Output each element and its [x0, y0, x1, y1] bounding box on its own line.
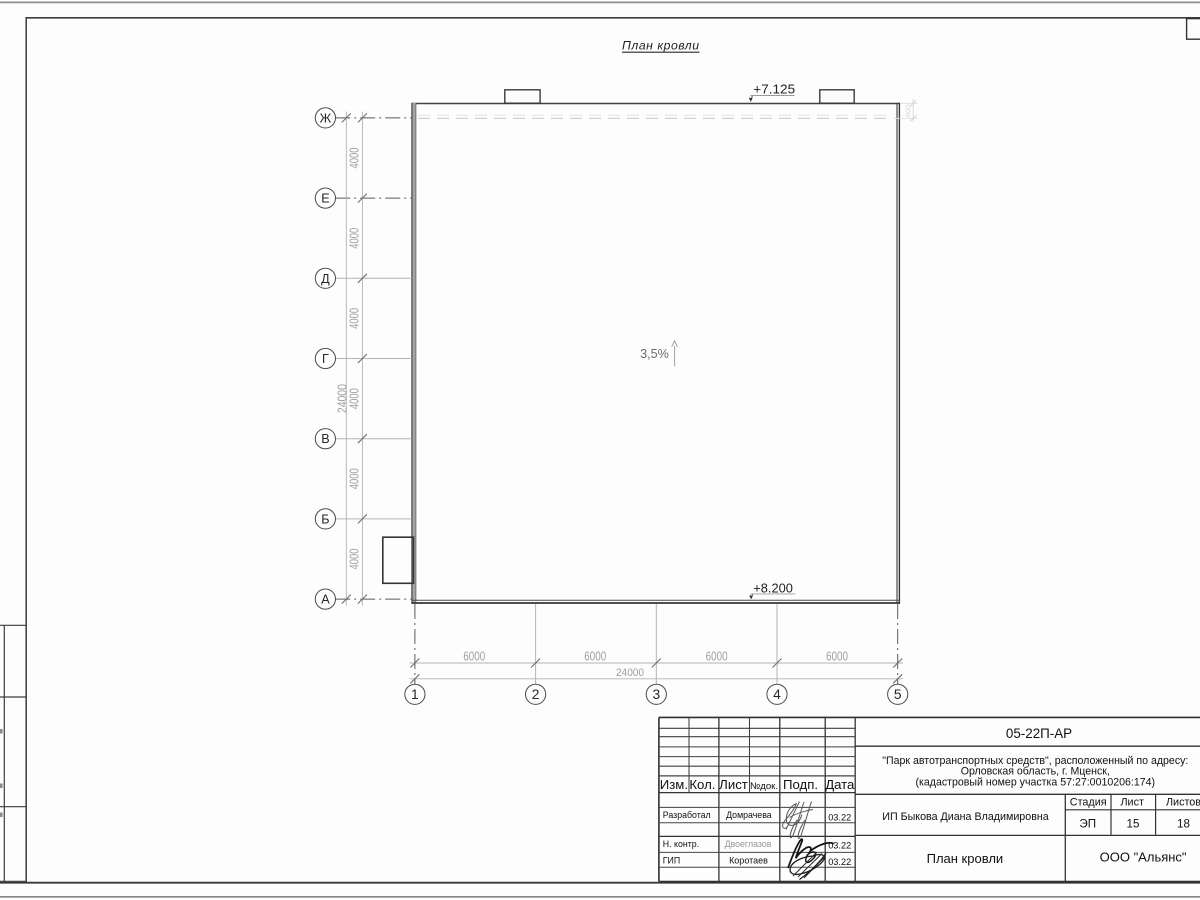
- svg-text:+7.125: +7.125: [753, 81, 795, 96]
- svg-text:Лист: Лист: [1120, 797, 1144, 809]
- svg-text:Двоеглазов: Двоеглазов: [725, 839, 772, 849]
- svg-text:Е: Е: [321, 192, 329, 206]
- svg-text:Изм.: Изм.: [660, 777, 688, 792]
- svg-text:03.22: 03.22: [828, 840, 851, 850]
- svg-text:18: 18: [1177, 817, 1190, 830]
- svg-text:24000: 24000: [335, 384, 350, 413]
- svg-text:3,5%: 3,5%: [640, 347, 669, 361]
- svg-text:Дата: Дата: [825, 777, 855, 792]
- svg-text:4: 4: [773, 687, 781, 702]
- svg-text:В: В: [321, 432, 329, 446]
- svg-text:Подп.: Подп.: [783, 777, 818, 792]
- svg-text:6000: 6000: [826, 648, 848, 663]
- svg-text:Домрачева: Домрачева: [726, 810, 772, 820]
- svg-text:800: 800: [904, 105, 913, 118]
- svg-text:(кадастровый номер участка 57:: (кадастровый номер участка 57:27:0010206…: [916, 777, 1156, 789]
- svg-text:А: А: [321, 593, 330, 607]
- svg-text:4000: 4000: [347, 308, 362, 329]
- svg-text:ЭП: ЭП: [1079, 817, 1096, 830]
- svg-text:05-22П-АР: 05-22П-АР: [1006, 726, 1072, 741]
- svg-text:03.22: 03.22: [828, 813, 851, 823]
- svg-text:03.22: 03.22: [828, 857, 851, 867]
- svg-text:ООО "Альянс": ООО "Альянс": [1100, 850, 1187, 865]
- svg-text:4000: 4000: [347, 228, 362, 249]
- svg-text:1: 1: [411, 687, 419, 702]
- svg-text:Стадия: Стадия: [1070, 797, 1107, 809]
- svg-text:Разработал: Разработал: [663, 810, 711, 820]
- svg-text:Коротаев: Коротаев: [729, 855, 768, 865]
- svg-text:№док.: №док.: [750, 781, 778, 792]
- svg-text:15: 15: [1127, 817, 1140, 830]
- svg-text:ИП Быкова Диана Владимировна: ИП Быкова Диана Владимировна: [882, 811, 1049, 823]
- svg-text:4000: 4000: [347, 468, 362, 489]
- svg-text:Листов: Листов: [1166, 797, 1200, 809]
- svg-text:+8.200: +8.200: [753, 580, 793, 595]
- svg-text:Ж: Ж: [320, 111, 332, 125]
- svg-text:План кровли: План кровли: [622, 38, 700, 52]
- svg-text:6000: 6000: [706, 648, 728, 663]
- svg-text:Лист: Лист: [719, 777, 748, 792]
- svg-text:ГИП: ГИП: [663, 855, 680, 865]
- svg-text:Д: Д: [321, 272, 330, 286]
- svg-text:5: 5: [894, 687, 902, 702]
- svg-text:3: 3: [652, 687, 660, 702]
- svg-text:Г: Г: [322, 352, 329, 366]
- svg-text:4000: 4000: [347, 148, 362, 169]
- svg-text:Н. контр.: Н. контр.: [663, 839, 699, 849]
- svg-text:24000: 24000: [616, 667, 644, 679]
- svg-text:2: 2: [532, 687, 540, 702]
- svg-text:4000: 4000: [347, 549, 362, 570]
- svg-text:6000: 6000: [463, 648, 485, 663]
- svg-text:Кол.: Кол.: [689, 777, 715, 792]
- svg-text:План кровли: План кровли: [927, 851, 1004, 866]
- svg-text:Б: Б: [321, 512, 329, 526]
- svg-text:6000: 6000: [584, 648, 606, 663]
